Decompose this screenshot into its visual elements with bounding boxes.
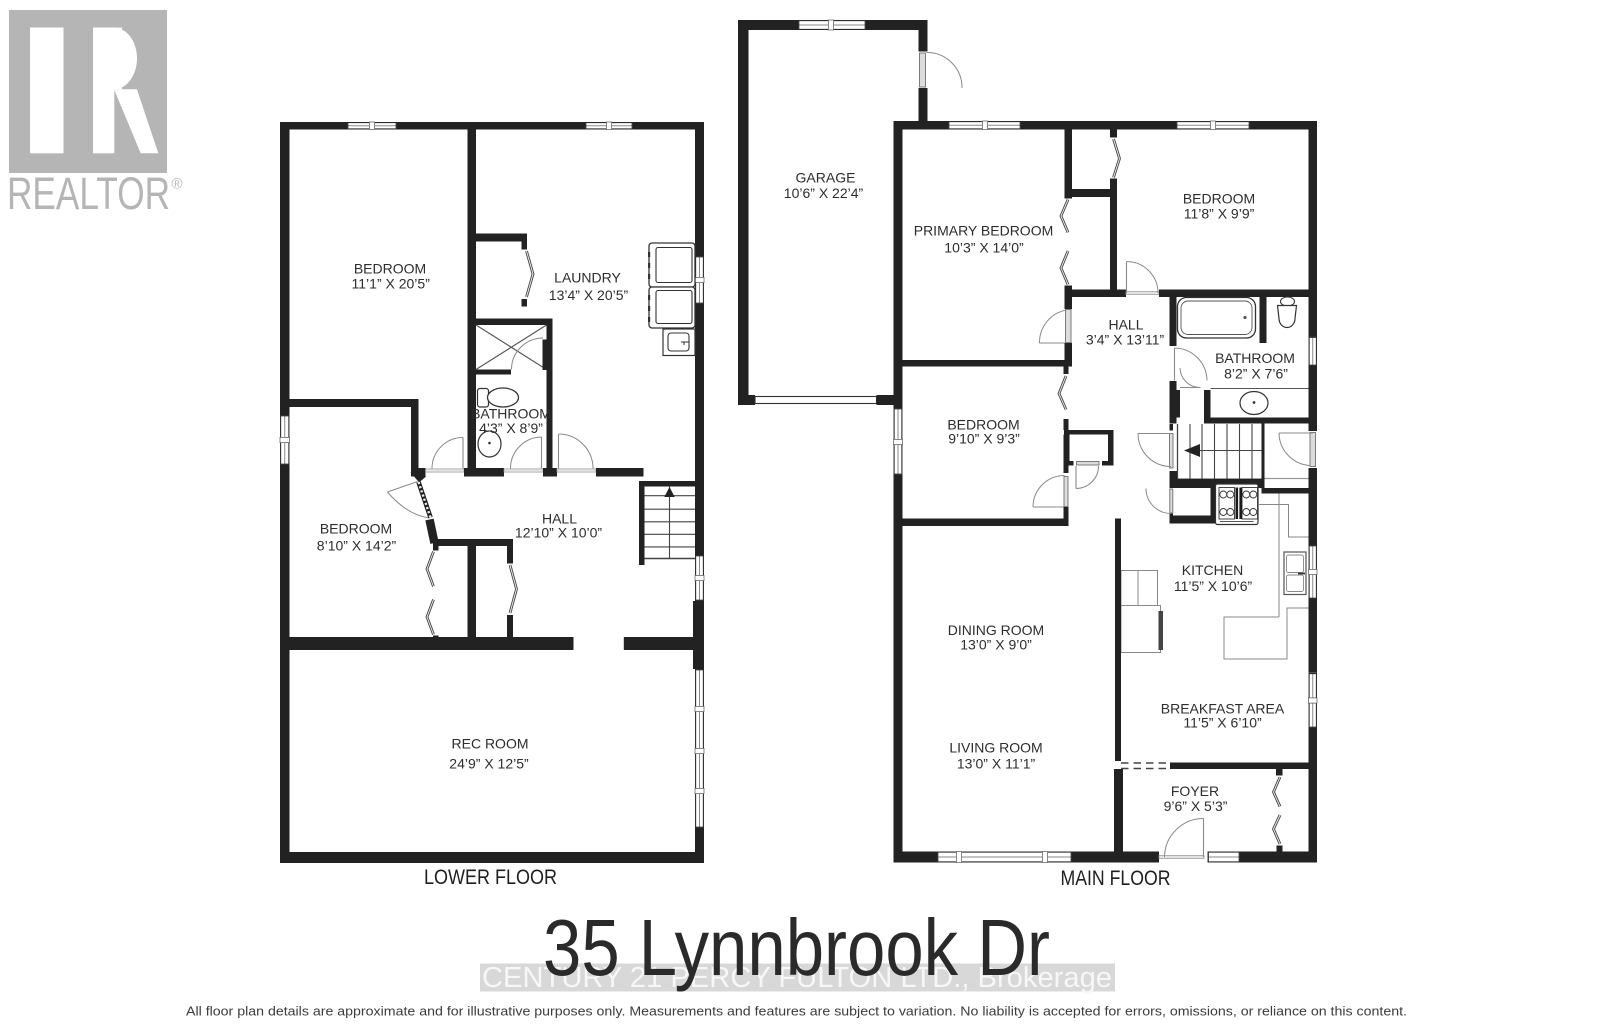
svg-text:11’5” X 10’6”: 11’5” X 10’6” bbox=[1174, 578, 1253, 594]
svg-text:MAIN FLOOR: MAIN FLOOR bbox=[1061, 867, 1171, 890]
svg-text:®: ® bbox=[171, 176, 182, 193]
svg-text:REALTOR: REALTOR bbox=[7, 168, 170, 219]
svg-text:35 Lynnbrook Dr: 35 Lynnbrook Dr bbox=[543, 903, 1050, 992]
svg-text:9’6” X 5’3”: 9’6” X 5’3” bbox=[1164, 798, 1228, 814]
svg-text:LAUNDRY: LAUNDRY bbox=[554, 270, 621, 286]
svg-text:REC ROOM: REC ROOM bbox=[452, 736, 529, 752]
svg-text:24’9” X 12’5”: 24’9” X 12’5” bbox=[449, 756, 529, 772]
svg-text:All floor plan details are app: All floor plan details are approximate a… bbox=[186, 1004, 1407, 1019]
svg-text:LOWER FLOOR: LOWER FLOOR bbox=[424, 866, 557, 889]
svg-text:13’0” X 11’1”: 13’0” X 11’1” bbox=[957, 756, 1036, 772]
svg-text:12’10” X 10’0”: 12’10” X 10’0” bbox=[515, 525, 603, 541]
svg-text:13’0” X 9’0”: 13’0” X 9’0” bbox=[960, 637, 1032, 653]
svg-text:11’8” X 9’9”: 11’8” X 9’9” bbox=[1184, 206, 1255, 222]
svg-text:9’10” X 9’3”: 9’10” X 9’3” bbox=[948, 431, 1020, 447]
svg-text:13’4” X 20’5”: 13’4” X 20’5” bbox=[549, 287, 629, 303]
svg-text:LIVING ROOM: LIVING ROOM bbox=[949, 740, 1042, 756]
svg-text:FOYER: FOYER bbox=[1171, 783, 1219, 799]
svg-text:10’6” X 22’4”: 10’6” X 22’4” bbox=[784, 185, 864, 201]
svg-text:11’1” X 20’5”: 11’1” X 20’5” bbox=[352, 276, 431, 292]
svg-text:11’5” X 6’10”: 11’5” X 6’10” bbox=[1183, 715, 1262, 731]
svg-text:PRIMARY BEDROOM: PRIMARY BEDROOM bbox=[914, 223, 1054, 239]
svg-text:8’10” X 14’2”: 8’10” X 14’2” bbox=[317, 538, 397, 554]
svg-text:8’2” X 7’6”: 8’2” X 7’6” bbox=[1224, 366, 1288, 382]
svg-text:BATHROOM: BATHROOM bbox=[1215, 350, 1295, 366]
svg-text:KITCHEN: KITCHEN bbox=[1182, 562, 1243, 578]
svg-text:BEDROOM: BEDROOM bbox=[320, 521, 392, 537]
svg-text:BEDROOM: BEDROOM bbox=[1183, 191, 1255, 207]
svg-text:10’3” X 14’0”: 10’3” X 14’0” bbox=[944, 240, 1024, 256]
svg-text:3’4” X 13’11”: 3’4” X 13’11” bbox=[1086, 332, 1165, 348]
svg-text:GARAGE: GARAGE bbox=[796, 170, 856, 186]
svg-text:HALL: HALL bbox=[1108, 317, 1143, 333]
svg-text:4’3” X 8’9”: 4’3” X 8’9” bbox=[479, 420, 543, 436]
svg-text:BEDROOM: BEDROOM bbox=[354, 261, 426, 277]
